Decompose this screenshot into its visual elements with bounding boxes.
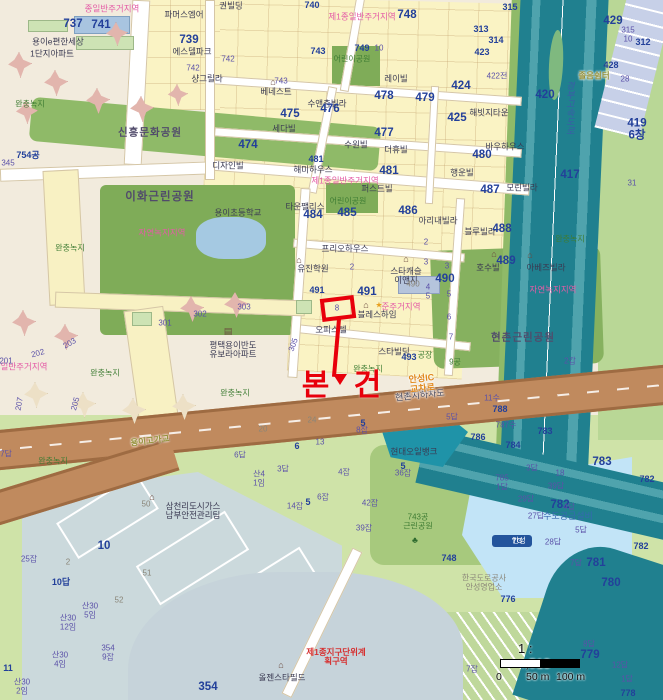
map-label: 산30 5임: [82, 602, 98, 619]
map-label: 749: [354, 44, 369, 54]
map-label: 31: [628, 180, 637, 189]
map-label: 유진학원: [297, 264, 328, 273]
map-label: 424: [451, 80, 470, 92]
map-label: 산30 4임: [52, 651, 68, 668]
map-label: 205: [70, 396, 82, 411]
map-label: 743공 근린공원: [403, 513, 432, 530]
map-label: 6: [447, 314, 451, 323]
map-label: 475: [280, 108, 299, 120]
map-label: 428: [603, 61, 618, 71]
map-label: 52: [115, 597, 124, 606]
tollgate-name: 안성: [512, 535, 526, 547]
map-label: 1답: [621, 676, 633, 685]
map-label: 778: [620, 689, 635, 699]
map-label: 현대오일뱅크: [391, 447, 438, 456]
map-label: 7답: [0, 451, 12, 460]
map-label: 퍼스트빌: [361, 184, 392, 193]
map-label: 5답: [575, 527, 587, 536]
map-label: 1단지아파트: [30, 49, 74, 58]
map-label: 4답: [563, 504, 575, 513]
map-label: 783: [537, 427, 552, 437]
map-label: 5: [447, 291, 451, 300]
map-label: 산30 2임: [14, 678, 30, 695]
map-label: 305: [288, 337, 301, 353]
map-label: 산4 1임: [253, 470, 265, 487]
map-label: 아베즈빌라: [526, 263, 565, 272]
map-label: 완충녹지: [15, 101, 44, 110]
map-label: 용이고가교: [130, 434, 170, 448]
map-label: 더휴빌: [384, 145, 407, 154]
map-label: 782: [633, 542, 648, 552]
scale-tick-100: 100 m: [556, 671, 585, 683]
map-label: ⌂: [296, 256, 301, 266]
map-label: 10답: [52, 578, 70, 588]
map-label: 모린빌라: [506, 183, 537, 192]
map-label: 에스델파크: [172, 47, 211, 56]
map-label: 25잡: [21, 556, 37, 565]
map-label: 완충녹지: [38, 458, 67, 467]
map-label: 디자인빌: [212, 161, 243, 170]
map-label: 39답: [548, 483, 564, 492]
map-label: 3: [424, 259, 428, 268]
map-label: 737: [63, 18, 82, 30]
map-label: 419 6창: [627, 118, 646, 143]
map-label: 345: [1, 160, 14, 169]
map-label: 10: [98, 540, 111, 552]
map-label: 용이초등학교: [215, 208, 262, 217]
map-label: 486: [398, 205, 417, 217]
map-label: 314: [488, 36, 503, 46]
map-label: 신흥문화공원: [118, 127, 182, 138]
map-label: 졸음쉼터: [578, 71, 609, 80]
map-label: 아리내빌라: [418, 216, 457, 225]
map-label: 481: [379, 165, 398, 177]
map-label: 산30 12임: [60, 614, 76, 631]
tollgate-badge: TG 안성: [492, 535, 532, 547]
map-label: 자연녹지지역: [530, 285, 577, 294]
map-label: 평택용이반도 유보라아파트: [210, 341, 257, 359]
map-label: 303: [237, 304, 250, 313]
map-label: ⌂: [278, 661, 283, 671]
map-label: 739: [179, 34, 198, 46]
map-label: 해미하우스: [293, 165, 332, 174]
map-label: 42잡: [362, 500, 378, 509]
map-label: 474: [238, 139, 257, 151]
map-label: 한국도로공사 안성영업소: [462, 574, 506, 591]
map-label: 24: [308, 417, 317, 426]
map-label: ⌂: [270, 78, 275, 88]
map-label: 5: [400, 462, 405, 472]
map-label: 315: [502, 3, 517, 13]
map-label: 354 9잡: [101, 644, 114, 661]
map-label: 행운빌: [450, 168, 473, 177]
scale-bar-graphic: [500, 659, 580, 668]
map-label: 7잡: [466, 666, 478, 675]
map-label: 9공: [449, 359, 461, 368]
map-label: 743: [310, 47, 325, 57]
map-label: ⌂: [527, 251, 532, 261]
map-label: 파머스엠어: [164, 10, 203, 19]
map-label: 28: [621, 76, 630, 85]
map-label: 478: [374, 90, 393, 102]
map-label: 313: [473, 25, 488, 35]
map-label: 레이빌: [384, 74, 407, 83]
map-label: 11: [3, 664, 13, 674]
map-label: 2: [424, 239, 428, 248]
map-label: 경부고속도로: [564, 81, 574, 135]
map-label: 완충녹지: [55, 245, 84, 254]
map-label: 공장: [418, 352, 433, 361]
map-label: 417: [560, 169, 579, 181]
map-label: 20: [259, 426, 268, 435]
map-label: 10: [375, 45, 384, 54]
map-label: 203: [62, 337, 78, 351]
map-label: 삼천리도시가스 남부안전관리팀: [166, 502, 221, 520]
scale-tick-50: 50 m: [526, 671, 549, 683]
map-label: 수원빌: [344, 140, 367, 149]
map-label: 39잡: [356, 525, 372, 534]
map-label: ⌂: [403, 255, 408, 265]
map-label: 3답: [526, 465, 538, 474]
map-label: 491: [357, 286, 376, 298]
map-label: 27답: [528, 513, 544, 522]
map-label: 487: [480, 184, 499, 196]
map-label: 3: [445, 263, 449, 272]
map-label: 28답: [545, 539, 561, 548]
map-label: 종일반주거지역: [85, 4, 140, 13]
map-label: 781: [586, 557, 605, 569]
map-label: 5: [360, 419, 365, 429]
map-label: 423: [474, 48, 489, 58]
map-label: 호수빌: [476, 263, 499, 272]
scale-bar: 1 : 4,513 0 50 m 100 m: [494, 641, 590, 685]
map-label: 783: [592, 456, 611, 468]
map-label: 742: [221, 56, 234, 65]
map-label: 7답: [570, 560, 582, 569]
map-label: 741: [91, 19, 110, 31]
map-label: 완충녹지: [555, 236, 584, 245]
map-label: 블레스하임: [357, 310, 396, 319]
map-label: 479: [415, 92, 434, 104]
map-label: 어린이공원: [334, 56, 371, 65]
map-label: 742: [186, 65, 199, 74]
map-label: 207: [15, 397, 26, 412]
map-label: 429: [603, 15, 622, 27]
map-label: 782: [639, 475, 654, 485]
map-label: 785 1답: [495, 474, 508, 491]
map-label: 422전: [487, 73, 508, 82]
map-label: 2갑: [564, 358, 576, 367]
map-label: 제1종지구단위계 획구역: [306, 648, 365, 666]
map-label: 해빗지타운: [469, 108, 508, 117]
map-label: 315 10: [621, 26, 634, 43]
map-label: 754공: [16, 151, 39, 161]
map-label: 오피스텔: [315, 325, 346, 334]
map-label: ⌂: [149, 493, 154, 503]
map-label: 4잡: [338, 469, 350, 478]
map-label: 301: [158, 320, 171, 329]
subject-label: 본 건: [278, 360, 413, 404]
map-label: 샹그릴라: [191, 74, 222, 83]
map-label: ▤: [224, 327, 233, 337]
map-label: 13: [316, 439, 325, 448]
map-label: 제1종일반주거지역: [328, 12, 395, 21]
map-label: 784: [505, 441, 520, 451]
map-label: 477: [374, 127, 393, 139]
map-label: 354: [198, 681, 217, 693]
map-label: 14잡: [287, 503, 303, 512]
map-label: 수도공급설비: [543, 512, 593, 522]
map-label: 권빌딩: [219, 1, 242, 10]
map-label: 29답: [518, 496, 534, 505]
map-label: 786: [470, 433, 485, 443]
map-label: 7: [449, 334, 453, 343]
map-label: 올젠스타필드: [259, 673, 306, 682]
map-label: 현촌근린공원: [491, 332, 555, 343]
map-label: 이화근린공원: [125, 191, 194, 203]
map-label: 780: [601, 577, 620, 589]
map-label: 491: [309, 286, 324, 296]
map-labels-layer: 용이e편한세상1단지아파트737741파머스엠어739에스델파크742샹그릴라권…: [0, 0, 663, 700]
map-label: 자연녹지지역: [139, 228, 186, 237]
map-label: 용이e편한세상: [32, 37, 84, 46]
map-label: 425: [447, 112, 466, 124]
map-label: 51: [143, 570, 152, 579]
map-label: 420: [535, 89, 554, 101]
map-label: 18: [556, 470, 565, 479]
map-label: 세다빌: [272, 124, 295, 133]
map-label: 787수: [496, 422, 517, 431]
map-label: 블루빌라: [464, 227, 495, 236]
map-label: 5답: [446, 414, 458, 423]
map-label: 480: [472, 149, 491, 161]
map-label: 312: [635, 38, 650, 48]
map-label: 11수: [484, 395, 500, 404]
map-label: 776: [500, 595, 515, 605]
map-label: 5: [426, 293, 430, 302]
map-label: ⌂: [491, 250, 496, 260]
map-label: 6: [294, 442, 299, 452]
map-label: ⌂: [363, 301, 368, 311]
map-label: 201: [0, 358, 13, 367]
map-label: 베네스트: [260, 87, 291, 96]
map-canvas[interactable]: TG 안성 용이e편한세상1단지아파트737741파머스엠어739에스델파크74…: [0, 0, 663, 700]
map-label: 743: [274, 78, 287, 87]
map-label: 788: [492, 405, 507, 415]
map-label: 6답: [234, 452, 246, 461]
scale-tick-0: 0: [496, 671, 502, 683]
map-label: 476: [320, 103, 339, 115]
map-label: 490: [435, 273, 454, 285]
map-label: 202: [30, 348, 45, 360]
map-label: 485: [337, 207, 356, 219]
map-label: 302: [193, 311, 206, 320]
map-label: 2: [350, 264, 354, 273]
map-label: 완충녹지: [90, 370, 119, 379]
map-label: 740: [304, 1, 319, 11]
map-label: 프리오하우스: [322, 244, 369, 253]
map-label: 5: [305, 498, 310, 508]
map-label: 12답: [612, 662, 628, 671]
map-label: 3답: [277, 466, 289, 475]
map-label: 488: [492, 223, 511, 235]
map-label: 481: [308, 155, 323, 165]
map-label: 6잡: [317, 494, 329, 503]
map-label: 484: [303, 209, 322, 221]
map-label: 2: [66, 559, 70, 568]
map-label: 748: [397, 9, 416, 21]
map-label: 완충녹지: [220, 390, 249, 399]
map-label: 490: [406, 281, 419, 290]
map-label: 어린이공원: [330, 198, 367, 207]
map-label: ♣: [412, 536, 418, 546]
map-label: 748: [441, 554, 456, 564]
